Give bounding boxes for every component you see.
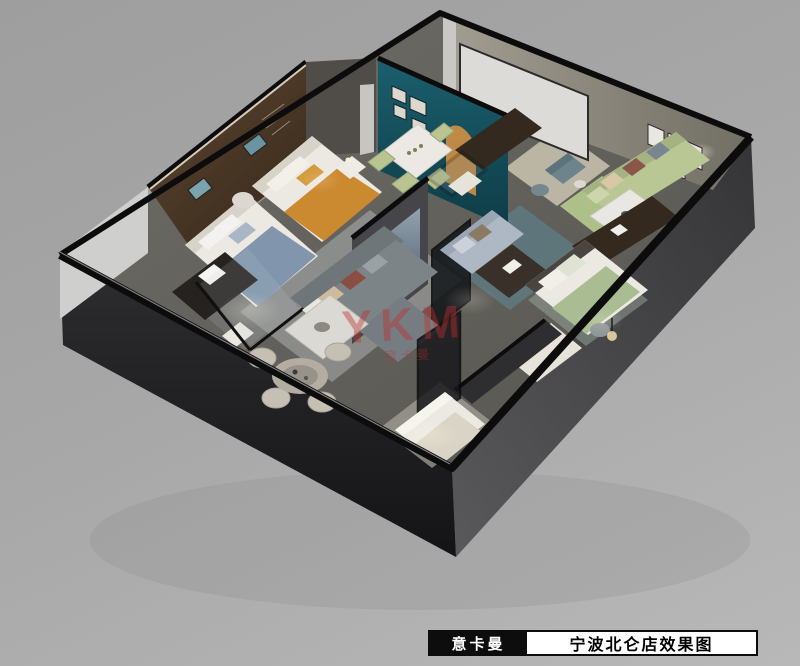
watermark-subtext: 意卡曼 <box>384 347 433 364</box>
white-pillar <box>360 84 374 155</box>
watermark-text: YKM <box>340 295 469 354</box>
render-canvas: YKM 意卡曼 意卡曼 宁波北仑店效果图 <box>0 0 800 666</box>
round-side-table <box>232 192 254 208</box>
caption-bar: 意卡曼 宁波北仑店效果图 <box>428 630 758 656</box>
side-table-round <box>574 180 586 188</box>
table-lamp <box>346 158 351 163</box>
apartment-3d-render: YKM 意卡曼 <box>0 0 800 666</box>
store-title-label: 宁波北仑店效果图 <box>527 632 756 654</box>
brand-label: 意卡曼 <box>430 632 527 654</box>
